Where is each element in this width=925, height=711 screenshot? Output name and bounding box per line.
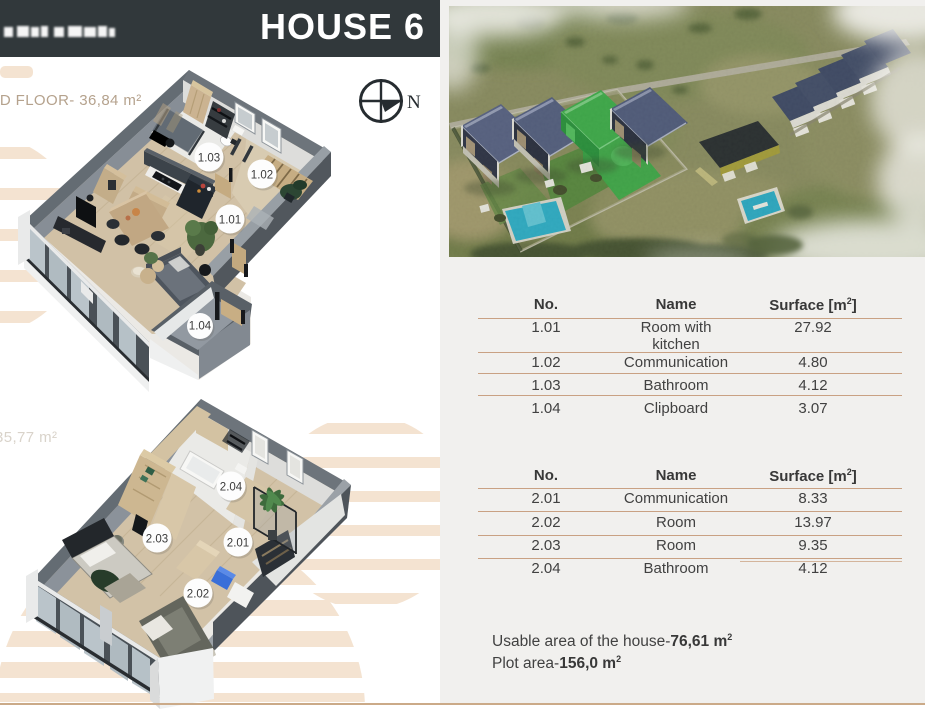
svg-text:1.02: 1.02 bbox=[251, 170, 273, 182]
svg-text:2.04: 2.04 bbox=[220, 482, 243, 494]
svg-text:2.03: 2.03 bbox=[146, 534, 168, 546]
svg-text:2.02: 2.02 bbox=[187, 589, 209, 601]
svg-text:1.01: 1.01 bbox=[219, 215, 241, 227]
svg-text:1.03: 1.03 bbox=[198, 153, 220, 165]
svg-text:2.01: 2.01 bbox=[227, 538, 249, 550]
svg-text:1.04: 1.04 bbox=[189, 321, 212, 333]
svg-text:N: N bbox=[407, 92, 421, 113]
